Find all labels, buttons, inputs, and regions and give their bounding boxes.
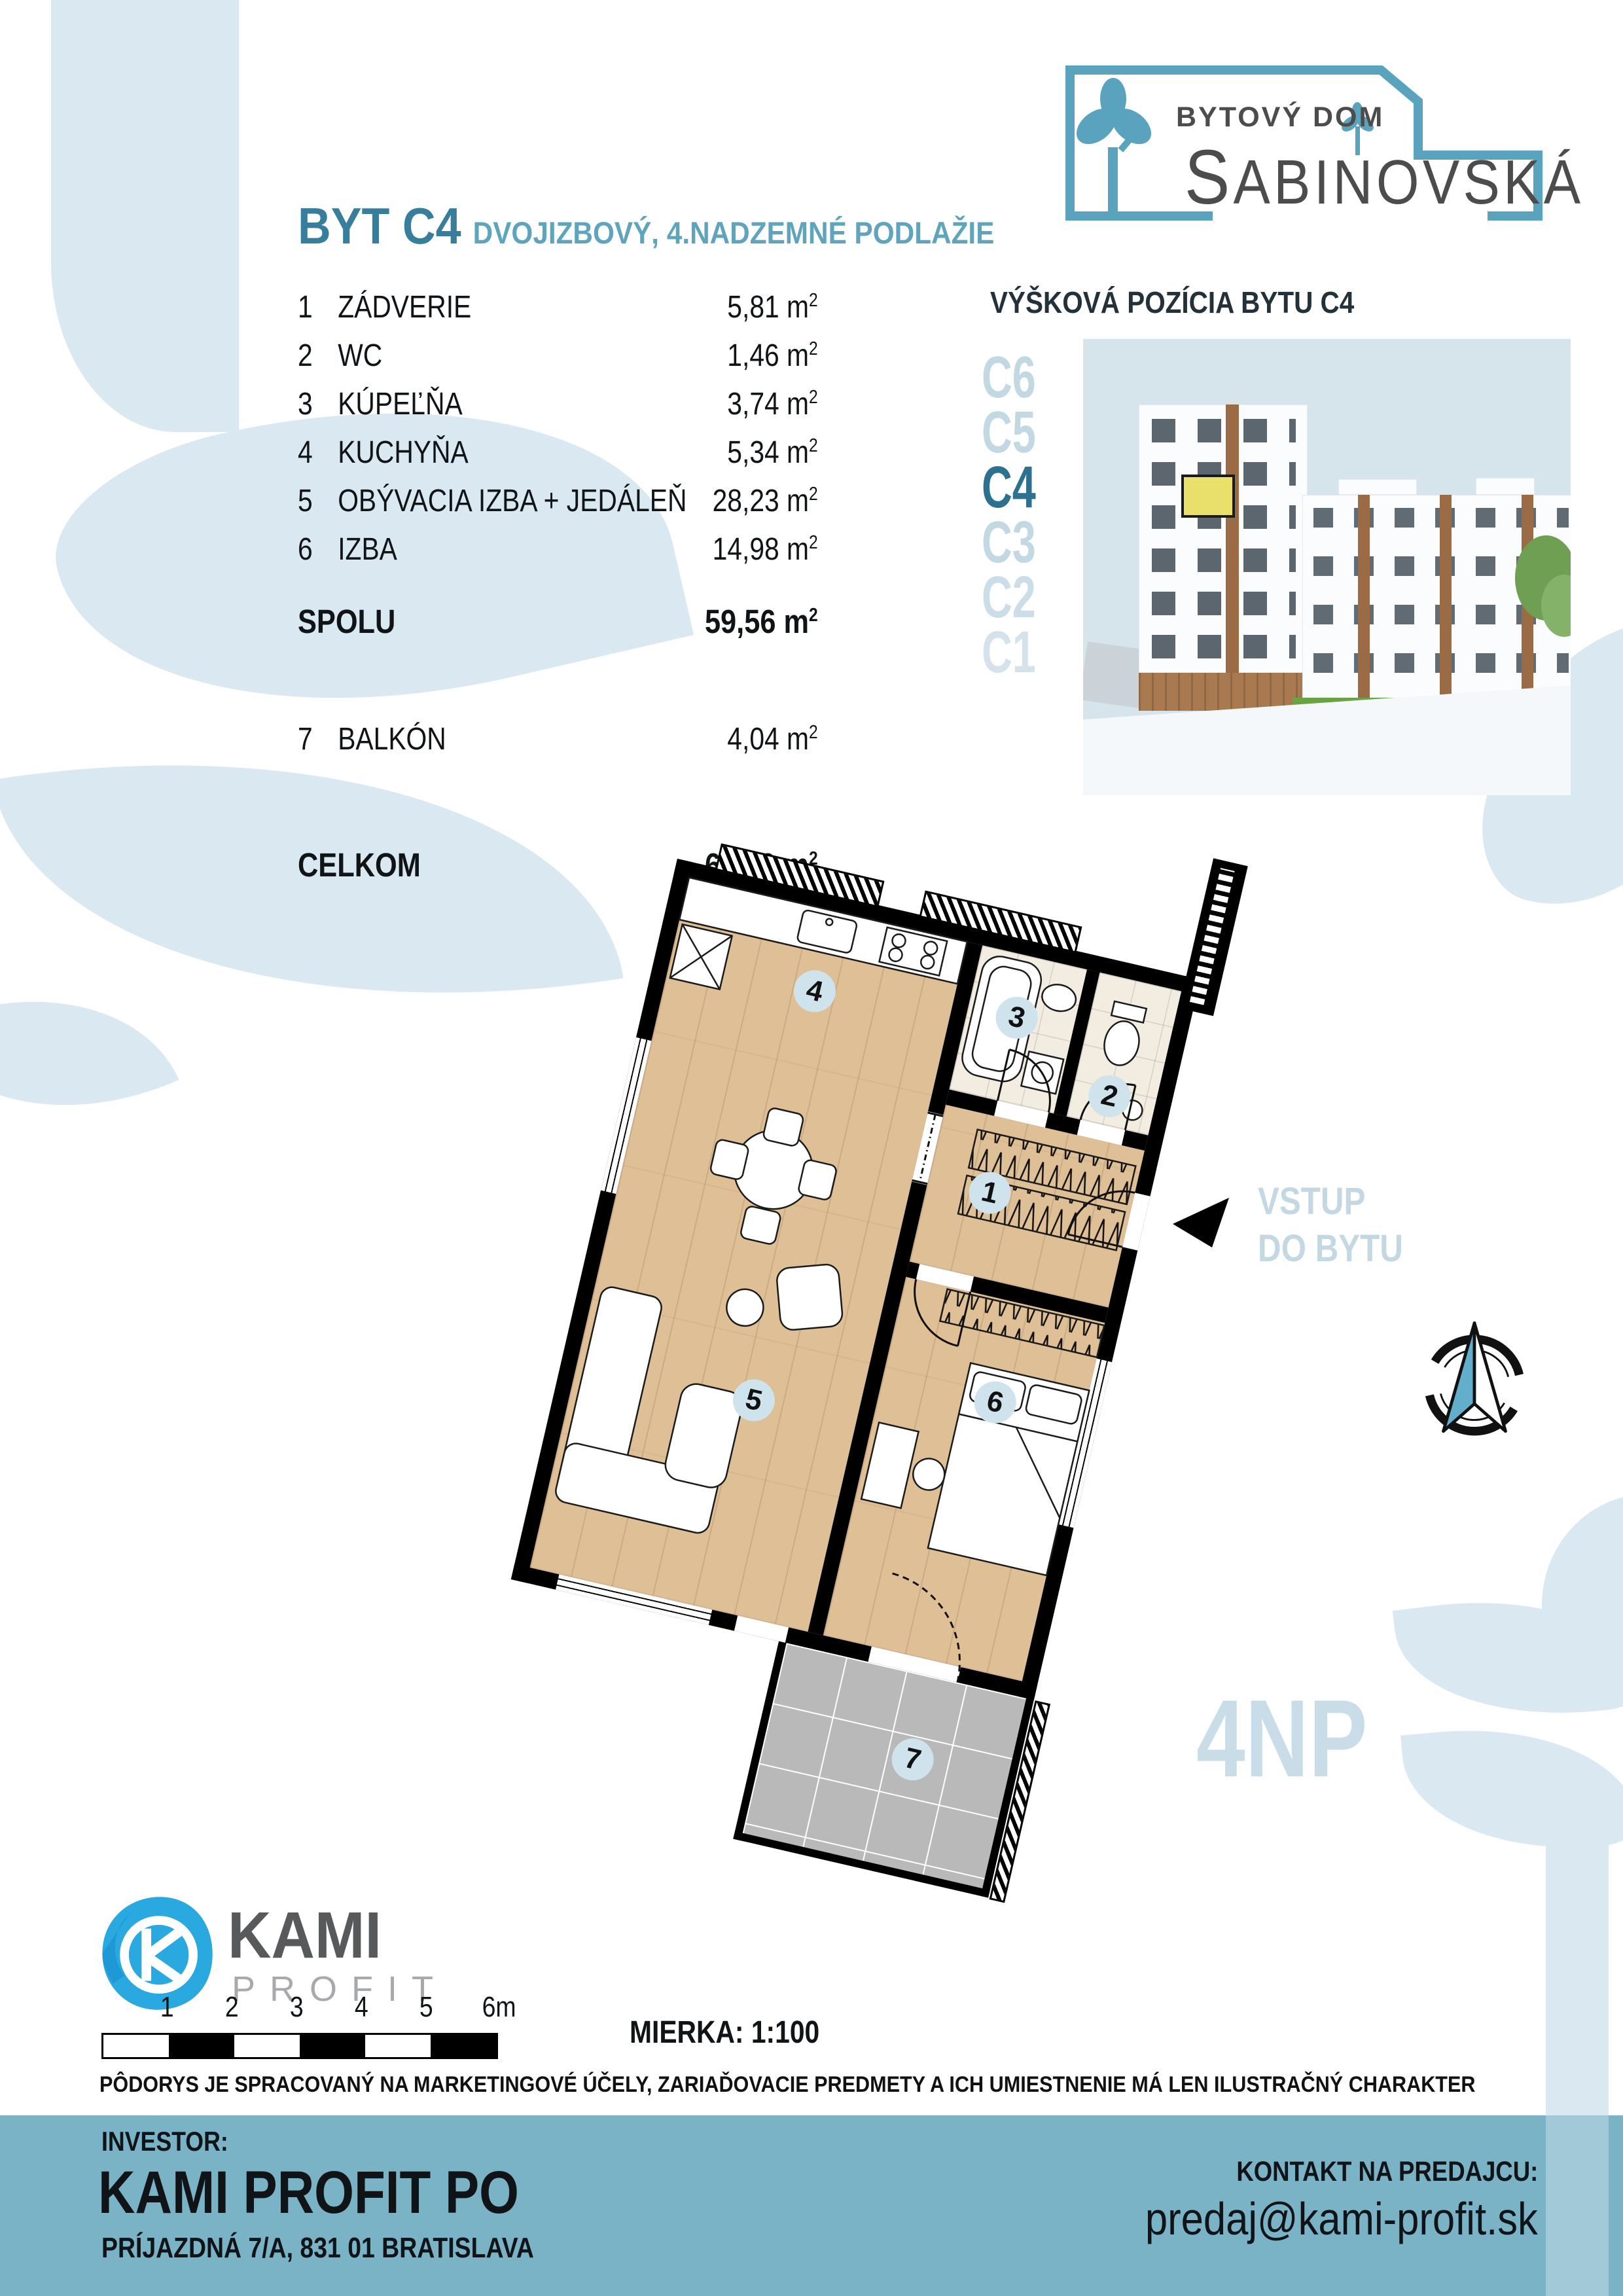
room-name: BALKÓN [338,721,727,757]
washbasin-icon [1039,981,1079,1014]
floor-label: C5 [982,406,1052,459]
floor-label: C3 [982,516,1052,569]
disclaimer-text: PÔDORYS JE SPRACOVANÝ NA MARKETINGOVÉ ÚČ… [99,2072,1476,2098]
room-row: 4 KUCHYŇA 5,34 m2 [298,435,818,475]
floor-label-highlighted: C4 [982,461,1052,514]
scale-segment [365,2035,431,2057]
entrance-label: VSTUP DO BYTU [1258,1178,1403,1272]
apartment-title-row: BYT C4 DVOJIZBOVÝ, 4.NADZEMNÉ PODLAŽIE [298,196,994,256]
wood-panel [1358,495,1370,708]
rooftop-box [1476,478,1535,495]
room-area: 28,23 m2 [713,483,818,519]
floor-label: C2 [982,571,1052,624]
toilet-icon [1100,1018,1143,1069]
room-row: 6 IZBA 14,98 m2 [298,531,818,572]
wood-panel [1226,404,1239,673]
armchair-icon [776,1263,844,1331]
floor-label: C1 [982,626,1052,679]
room-area: 4,04 m2 [727,721,817,757]
decor-footer-strip [1546,2115,1609,2296]
elevation-title: VÝŠKOVÁ POZÍCIA BYTU C4 [990,285,1354,320]
chair-icon [762,1107,804,1147]
kami-logo-name: KAMI [228,1898,382,1973]
brand-logo: BYTOVÝ DOM SABINOVSKÁ [1050,56,1554,226]
investor-label: INVESTOR: [101,2126,228,2157]
furniture-layer [459,859,1226,1929]
desk-icon [861,1422,918,1508]
tree-icon [1070,78,1158,216]
total-label: CELKOM [298,846,705,884]
chair-icon [740,1206,781,1246]
room-area: 14,98 m2 [713,531,818,567]
scale-label: MIERKA: 1:100 [630,2015,819,2051]
entrance-arrow-icon [1171,1196,1237,1255]
subtotal-label: SPOLU [298,602,705,641]
wardrobe-icon [940,1289,1104,1357]
north-compass-icon [1412,1316,1537,1440]
scale-tick: 5 [419,1991,433,2024]
kami-logo-suffix: PROFIT [232,1969,448,2009]
apartment-title: BYT C4 [298,196,461,256]
room-name: OBÝVACIA IZBA + JEDÁLEŇ [338,483,712,519]
room-area: 5,81 m2 [727,289,817,325]
faucet-icon [825,918,833,926]
footer: INVESTOR: KAMI PROFIT PO PRÍJAZDNÁ 7/A, … [0,2115,1623,2296]
scale-tick: 4 [355,1991,368,2024]
room-row: 2 WC 1,46 m2 [298,338,818,378]
chair-icon [709,1139,749,1181]
scale-segment [103,2035,169,2057]
window-row [1152,635,1296,658]
unit-highlight [1181,475,1235,518]
rooftop-box [1338,479,1417,495]
building-left-tower [1139,404,1308,673]
room-row: 5 OBÝVACIA IZBA + JEDÁLEŇ 28,23 m2 [298,483,818,524]
apartment-subtitle: DVOJIZBOVÝ, 4.NADZEMNÉ PODLAŽIE [473,215,995,251]
room-number: 3 [298,386,338,422]
room-number: 1 [298,289,338,325]
page-root: BYTOVÝ DOM SABINOVSKÁ BYT C4 DVOJIZBOVÝ,… [0,0,1623,2296]
room-area: 3,74 m2 [727,386,817,422]
room-name: WC [338,338,727,374]
window-row [1152,548,1296,572]
room-name: IZBA [338,531,712,567]
room-number: 7 [298,721,338,757]
room-row: 3 KÚPEĽŇA 3,74 m2 [298,386,818,427]
investor-address: PRÍJAZDNÁ 7/A, 831 01 BRATISLAVA [101,2232,534,2265]
scale-segment [169,2035,234,2057]
window-row [1152,419,1296,442]
scale-tick: 6m [482,1991,516,2024]
scale-segment [234,2035,300,2057]
contact-email[interactable]: predaj@kami-profit.sk [1145,2193,1538,2245]
brand-name: SABINOVSKÁ [1185,133,1584,222]
contact-label: KONTAKT NA PREDAJCU: [1236,2156,1538,2188]
decor-leaf-stem [1546,1805,1609,2118]
room-name: ZÁDVERIE [338,289,727,325]
subtotal-row: SPOLU 59,56 m2 [298,602,818,643]
scale-tick: 2 [225,1991,239,2024]
elevation-render [1083,339,1571,795]
room-number: 6 [298,531,338,567]
floor-label: C6 [982,351,1052,404]
window-row [1152,592,1296,615]
room-name: KÚPEĽŇA [338,386,727,422]
decor-leaf-stem [51,0,239,432]
balcony-row: 7 BALKÓN 4,04 m2 [298,721,818,762]
room-number: 4 [298,435,338,471]
subtotal-area: 59,56 m2 [705,602,818,641]
floor-code: 4NP [1196,1676,1367,1802]
room-area: 1,46 m2 [727,338,817,374]
room-number: 5 [298,483,338,519]
side-table-icon [723,1285,767,1329]
room-area: 5,34 m2 [727,435,817,471]
scale-tick: 1 [160,1991,174,2024]
floor-plan: 1 2 3 4 5 6 7 [459,859,1226,1929]
room-number: 2 [298,338,338,374]
scale-segment [300,2035,365,2057]
wood-panel [1440,495,1452,708]
room-row: 1 ZÁDVERIE 5,81 m2 [298,289,818,330]
scale-bar [101,2033,498,2059]
kami-logo-mark [97,1893,218,2014]
decor-leaf [0,939,179,1168]
toilet-tank-icon [1111,1001,1147,1023]
scale-segment [431,2035,496,2057]
scale-tick: 3 [290,1991,304,2024]
investor-name: KAMI PROFIT PO [98,2159,519,2227]
room-name: KUCHYŇA [338,435,727,471]
brand-tagline: BYTOVÝ DOM [1176,101,1384,134]
chair-icon [798,1159,838,1201]
door-swing-dashed [868,1573,978,1683]
